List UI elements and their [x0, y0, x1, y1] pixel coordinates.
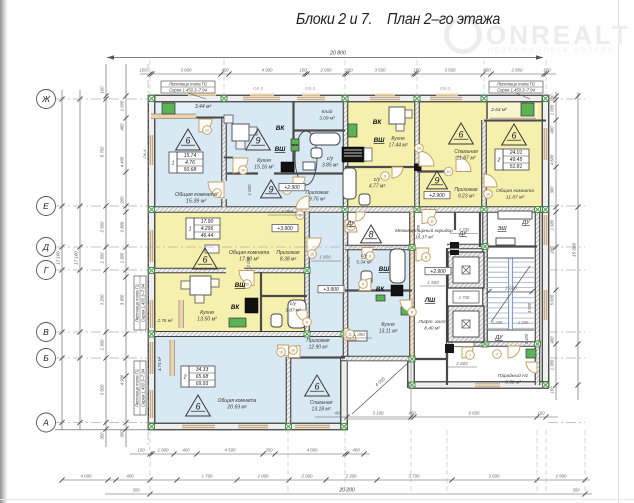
svg-text:15.39 м²: 15.39 м² — [186, 198, 207, 204]
svg-text:Кухня: Кухня — [381, 322, 395, 328]
svg-text:2 000: 2 000 — [346, 256, 351, 268]
svg-text:50.68: 50.68 — [184, 167, 197, 173]
svg-text:8.58 м²: 8.58 м² — [505, 379, 521, 385]
svg-text:4.77 м²: 4.77 м² — [369, 183, 386, 189]
svg-text:Лифт. холл: Лифт. холл — [418, 319, 446, 325]
svg-text:3.44 м²: 3.44 м² — [195, 104, 212, 110]
svg-text:10: 10 — [310, 253, 314, 257]
svg-text:6 600: 6 600 — [469, 411, 481, 416]
svg-text:5.34 м²: 5.34 м² — [356, 259, 372, 265]
svg-text:3 200: 3 200 — [100, 294, 105, 305]
svg-text:1: 1 — [189, 227, 192, 233]
svg-text:20.69 м²: 20.69 м² — [227, 404, 247, 410]
svg-text:46.44: 46.44 — [201, 233, 214, 239]
svg-text:400: 400 — [550, 336, 555, 344]
svg-text:11.87 м²: 11.87 м² — [506, 194, 525, 200]
svg-text:+3.900: +3.900 — [277, 226, 293, 232]
svg-text:Общая комната: Общая комната — [175, 192, 217, 198]
svg-text:1 700: 1 700 — [459, 227, 470, 232]
svg-text:Лестница типа П1: Лестница типа П1 — [496, 82, 535, 87]
svg-text:4 000: 4 000 — [262, 68, 274, 73]
svg-text:49.45: 49.45 — [510, 157, 523, 163]
svg-text:10: 10 — [291, 349, 295, 353]
svg-text:10: 10 — [486, 193, 490, 197]
svg-text:ДУ: ДУ — [346, 221, 356, 227]
svg-text:+2.900: +2.900 — [430, 269, 446, 275]
svg-text:Прихожая: Прихожая — [454, 187, 478, 193]
svg-text:2 800: 2 800 — [511, 68, 524, 73]
svg-text:ДУ: ДУ — [521, 220, 531, 226]
svg-text:ОК-3: ОК-3 — [440, 86, 450, 91]
svg-text:200: 200 — [120, 196, 125, 205]
svg-text:300: 300 — [573, 488, 581, 493]
svg-text:с/у: с/у — [361, 253, 368, 259]
svg-text:3 000: 3 000 — [527, 302, 532, 313]
svg-text:17.44 м²: 17.44 м² — [389, 142, 408, 148]
svg-text:200: 200 — [344, 68, 353, 73]
svg-text:13.11 м²: 13.11 м² — [379, 328, 398, 334]
svg-text:6: 6 — [511, 131, 516, 141]
svg-text:9.23 м²: 9.23 м² — [458, 193, 475, 199]
svg-text:400: 400 — [182, 448, 190, 453]
svg-text:В: В — [43, 327, 49, 337]
svg-text:ВШ: ВШ — [275, 146, 287, 153]
svg-text:1: 1 — [172, 161, 175, 167]
svg-text:Общая комната: Общая комната — [218, 398, 257, 404]
svg-text:69.93: 69.93 — [196, 381, 209, 387]
svg-text:300: 300 — [120, 430, 125, 438]
svg-text:2.64 м²: 2.64 м² — [490, 107, 507, 113]
svg-text:с/у: с/у — [290, 301, 297, 307]
svg-text:100: 100 — [550, 94, 555, 102]
svg-text:6: 6 — [314, 382, 319, 392]
svg-text:6: 6 — [185, 136, 190, 146]
svg-text:10: 10 — [241, 169, 245, 173]
svg-text:17 100: 17 100 — [74, 251, 79, 265]
svg-text:8: 8 — [411, 311, 413, 315]
svg-text:1 800: 1 800 — [319, 255, 331, 260]
svg-text:Лестница типа П1: Лестница типа П1 — [135, 284, 140, 323]
svg-text:3 300: 3 300 — [120, 294, 125, 305]
svg-text:20 200: 20 200 — [338, 488, 355, 494]
svg-text:Спальная: Спальная — [310, 400, 333, 406]
svg-text:Б: Б — [43, 353, 49, 363]
svg-text:1 300: 1 300 — [100, 252, 105, 263]
svg-text:400: 400 — [483, 68, 491, 73]
svg-text:4 400: 4 400 — [120, 156, 125, 167]
svg-text:7: 7 — [496, 353, 498, 357]
svg-text:4.76: 4.76 — [185, 160, 195, 166]
svg-text:2 600: 2 600 — [100, 221, 105, 233]
svg-text:1 200: 1 200 — [518, 320, 529, 325]
svg-text:4 600: 4 600 — [550, 154, 555, 165]
svg-text:1 700: 1 700 — [202, 474, 214, 479]
svg-text:Прихожая: Прихожая — [276, 250, 300, 256]
svg-text:24.01: 24.01 — [509, 150, 523, 156]
svg-text:34.33: 34.33 — [196, 367, 209, 373]
svg-text:ЭШ: ЭШ — [497, 226, 507, 232]
svg-text:Парадный Н1: Парадный Н1 — [498, 372, 529, 379]
svg-text:3.85 м²: 3.85 м² — [322, 162, 339, 168]
svg-text:8.40 м²: 8.40 м² — [424, 325, 440, 331]
svg-text:8.38 м²: 8.38 м² — [280, 256, 297, 262]
svg-text:+2.900: +2.900 — [284, 185, 300, 191]
svg-text:ДУ: ДУ — [494, 335, 504, 341]
svg-text:3.09 м²: 3.09 м² — [319, 115, 335, 121]
svg-text:3 700: 3 700 — [409, 474, 421, 479]
svg-text:11: 11 — [298, 214, 302, 218]
svg-text:с/у: с/у — [327, 156, 334, 162]
svg-text:2: 2 — [183, 375, 187, 381]
svg-text:Серия 1.450.3–7.94: Серия 1.450.3–7.94 — [141, 368, 146, 407]
svg-text:ВК: ВК — [231, 304, 240, 311]
svg-text:Спальная: Спальная — [454, 149, 478, 155]
svg-text:Межквартирный коридор: Межквартирный коридор — [395, 227, 453, 234]
svg-text:9: 9 — [268, 184, 273, 194]
svg-text:9: 9 — [434, 175, 439, 185]
svg-text:2.76 м²: 2.76 м² — [157, 318, 173, 323]
svg-text:ВК: ВК — [276, 125, 286, 132]
svg-text:Прихожая: Прихожая — [305, 190, 329, 196]
svg-text:300: 300 — [100, 432, 105, 440]
svg-text:3 100: 3 100 — [373, 411, 385, 416]
svg-text:10: 10 — [417, 147, 421, 151]
svg-text:5 700: 5 700 — [100, 146, 105, 157]
svg-text:1 000: 1 000 — [120, 100, 125, 111]
svg-text:1 200: 1 200 — [492, 320, 503, 325]
svg-text:ОК-3: ОК-3 — [305, 86, 315, 91]
svg-text:100: 100 — [537, 411, 545, 416]
svg-text:Общая комната: Общая комната — [496, 188, 534, 194]
svg-text:8: 8 — [368, 229, 373, 239]
svg-text:с/у: с/у — [374, 177, 381, 183]
svg-text:Кухня: Кухня — [391, 136, 405, 142]
svg-text:11: 11 — [430, 220, 434, 224]
svg-text:ВШ: ВШ — [379, 266, 390, 273]
svg-text:12: 12 — [205, 129, 209, 133]
svg-text:3 600: 3 600 — [489, 474, 501, 479]
svg-text:51.81: 51.81 — [510, 164, 523, 170]
svg-text:400: 400 — [221, 68, 229, 73]
svg-text:17 100: 17 100 — [56, 251, 61, 265]
svg-text:2: 2 — [497, 158, 501, 164]
svg-text:4 000: 4 000 — [374, 376, 386, 388]
svg-text:100: 100 — [137, 448, 145, 453]
svg-text:15 600: 15 600 — [572, 243, 577, 257]
svg-text:4 900: 4 900 — [120, 374, 125, 385]
svg-text:Общая комната: Общая комната — [229, 250, 269, 256]
svg-text:300: 300 — [133, 488, 141, 493]
svg-text:3 500: 3 500 — [100, 384, 105, 395]
svg-text:ВШ: ВШ — [235, 282, 246, 289]
svg-text:15.16 м²: 15.16 м² — [254, 164, 274, 170]
svg-text:1 000: 1 000 — [158, 448, 170, 453]
svg-text:2 800: 2 800 — [120, 221, 125, 233]
svg-text:1 000: 1 000 — [550, 104, 555, 115]
svg-text:+3.900: +3.900 — [323, 287, 339, 293]
svg-text:13.18 м²: 13.18 м² — [312, 406, 331, 412]
svg-text:Лестница типа П1: Лестница типа П1 — [168, 82, 207, 87]
svg-text:100: 100 — [550, 386, 555, 394]
svg-text:Д: Д — [42, 242, 49, 252]
svg-text:ВК: ВК — [376, 286, 385, 293]
svg-text:15.74: 15.74 — [184, 153, 197, 159]
svg-text:400: 400 — [120, 123, 125, 131]
svg-text:9: 9 — [255, 136, 260, 146]
svg-text:6: 6 — [195, 402, 200, 412]
svg-text:ВШ: ВШ — [374, 137, 386, 144]
svg-text:5 600: 5 600 — [550, 294, 555, 305]
svg-text:4 000: 4 000 — [307, 448, 319, 453]
svg-text:400: 400 — [334, 411, 342, 416]
svg-text:2 900: 2 900 — [555, 474, 568, 479]
svg-text:300: 300 — [550, 186, 555, 194]
svg-text:ВК: ВК — [373, 119, 383, 126]
svg-text:13.50 м²: 13.50 м² — [197, 316, 217, 322]
svg-text:400: 400 — [550, 126, 555, 134]
svg-text:Кухня: Кухня — [200, 310, 214, 316]
svg-text:1 300: 1 300 — [100, 339, 105, 350]
svg-text:2 600: 2 600 — [455, 361, 468, 366]
svg-text:2 600: 2 600 — [504, 286, 517, 291]
svg-text:100: 100 — [299, 68, 307, 73]
svg-text:1 300: 1 300 — [120, 252, 125, 263]
svg-text:8: 8 — [425, 256, 427, 260]
svg-text:400: 400 — [408, 411, 416, 416]
svg-text:6: 6 — [202, 255, 207, 265]
svg-text:17.90: 17.90 — [201, 219, 214, 225]
svg-text:20 800: 20 800 — [329, 51, 346, 57]
svg-text:ОК-3: ОК-3 — [253, 86, 263, 91]
svg-text:9: 9 — [362, 283, 364, 287]
svg-text:400: 400 — [352, 448, 360, 453]
svg-text:7: 7 — [469, 354, 471, 358]
svg-text:1 700: 1 700 — [459, 295, 470, 300]
svg-text:+2.900: +2.900 — [429, 193, 445, 199]
svg-text:4.296: 4.296 — [201, 226, 214, 232]
svg-text:Серия 1.450.3–7.94: Серия 1.450.3–7.94 — [497, 88, 536, 93]
svg-text:12.90 м²: 12.90 м² — [309, 344, 328, 350]
svg-text:1 300: 1 300 — [550, 359, 555, 370]
svg-text:100: 100 — [100, 86, 105, 94]
svg-text:1 600: 1 600 — [550, 219, 555, 230]
svg-text:2 000: 2 000 — [320, 68, 333, 73]
svg-text:200: 200 — [264, 448, 273, 453]
svg-text:11.87 м²: 11.87 м² — [456, 155, 476, 161]
svg-text:100: 100 — [139, 68, 147, 73]
svg-text:А: А — [42, 418, 49, 428]
svg-text:10: 10 — [279, 351, 283, 355]
svg-text:Ж: Ж — [41, 94, 51, 104]
svg-text:4 000: 4 000 — [81, 474, 93, 479]
svg-text:1 950: 1 950 — [281, 209, 293, 214]
svg-text:6: 6 — [458, 130, 463, 140]
svg-text:10: 10 — [245, 283, 249, 287]
svg-text:2 300: 2 300 — [345, 474, 358, 479]
svg-text:1 600: 1 600 — [247, 184, 252, 196]
svg-text:65.68: 65.68 — [196, 374, 209, 380]
svg-text:9.76 м²: 9.76 м² — [309, 196, 326, 202]
svg-text:2 000: 2 000 — [246, 256, 251, 268]
svg-text:Клад: Клад — [322, 109, 333, 115]
svg-text:400: 400 — [126, 474, 134, 479]
svg-text:1 400: 1 400 — [524, 333, 529, 344]
svg-text:2 000: 2 000 — [301, 474, 314, 479]
svg-text:9: 9 — [306, 321, 308, 325]
svg-text:3 500: 3 500 — [375, 68, 387, 73]
svg-text:100: 100 — [543, 68, 551, 73]
svg-text:ЛШ: ЛШ — [424, 297, 436, 304]
svg-text:1 390: 1 390 — [353, 332, 365, 337]
svg-text:Лестница типа П1: Лестница типа П1 — [135, 369, 140, 408]
svg-text:11: 11 — [348, 333, 352, 337]
svg-text:Серия 1.450.3–7.94: Серия 1.450.3–7.94 — [169, 88, 208, 93]
svg-text:Кухня: Кухня — [257, 158, 271, 164]
svg-text:4.74 м²: 4.74 м² — [157, 356, 162, 371]
svg-text:1 700: 1 700 — [416, 224, 421, 235]
svg-text:10: 10 — [447, 170, 451, 174]
svg-text:Прихожая: Прихожая — [306, 338, 330, 344]
svg-text:9: 9 — [384, 175, 386, 179]
svg-text:100: 100 — [413, 68, 421, 73]
svg-text:3 500: 3 500 — [445, 68, 457, 73]
svg-text:ОК-4: ОК-4 — [142, 149, 147, 159]
svg-text:3.87 м²: 3.87 м² — [285, 307, 301, 313]
svg-text:2 000: 2 000 — [257, 474, 270, 479]
svg-text:4 500: 4 500 — [225, 448, 237, 453]
svg-text:9: 9 — [369, 255, 371, 259]
svg-text:1 500: 1 500 — [427, 280, 439, 285]
svg-text:Серия 1.450.3–7.94: Серия 1.450.3–7.94 — [141, 283, 146, 322]
svg-text:3 600: 3 600 — [181, 68, 193, 73]
svg-text:Е: Е — [43, 201, 49, 211]
